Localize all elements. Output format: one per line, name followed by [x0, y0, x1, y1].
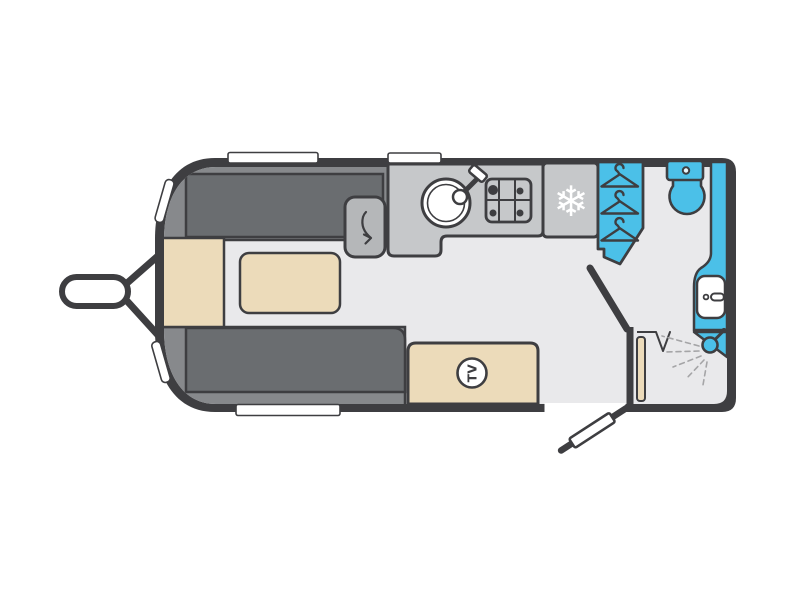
table — [240, 253, 340, 313]
front-chest — [158, 238, 224, 327]
washbasin — [697, 276, 726, 318]
fridge: ❄ — [543, 163, 598, 237]
window — [236, 405, 340, 416]
basin-tap-icon — [711, 294, 724, 301]
caravan-floorplan: ❄ — [0, 0, 800, 600]
washroom-door — [637, 337, 645, 401]
worktop-flap — [345, 197, 385, 257]
flush-button-icon — [683, 167, 689, 173]
entrance — [545, 403, 630, 455]
tow-hitch — [62, 248, 167, 345]
tv-unit: TV — [408, 343, 538, 404]
rear-sofa-cushion — [186, 328, 405, 392]
snowflake-icon: ❄ — [553, 177, 588, 226]
hob — [486, 179, 531, 222]
floorplan-page: ❄ — [0, 0, 800, 600]
tv-label: TV — [466, 364, 480, 383]
window — [228, 153, 318, 164]
window — [388, 153, 441, 163]
toilet — [667, 161, 704, 214]
